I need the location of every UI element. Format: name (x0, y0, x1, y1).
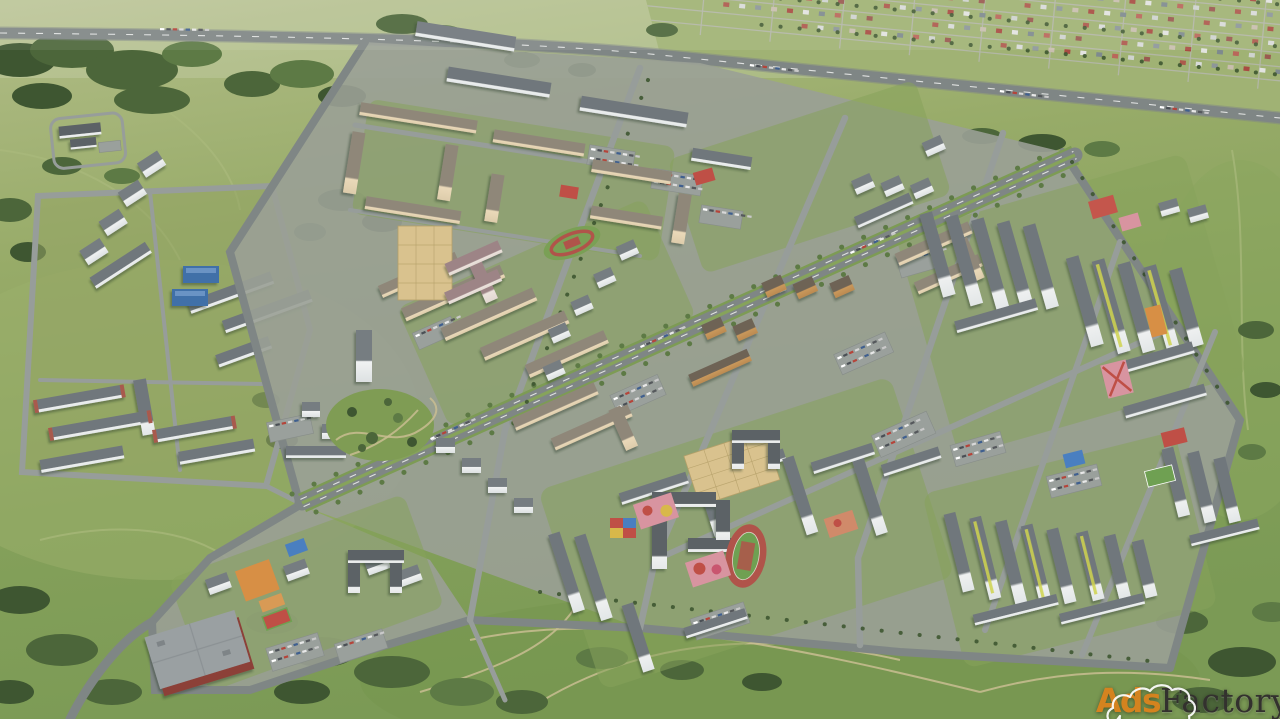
aerial-scene (0, 0, 1280, 719)
checker-courts (610, 518, 636, 538)
watermark: AdsFactory (1096, 684, 1280, 717)
aerial-render-masterplan: AdsFactory (0, 0, 1280, 719)
atmospheric-haze (0, 0, 1280, 50)
sketch-tree-icon (1096, 684, 1196, 719)
